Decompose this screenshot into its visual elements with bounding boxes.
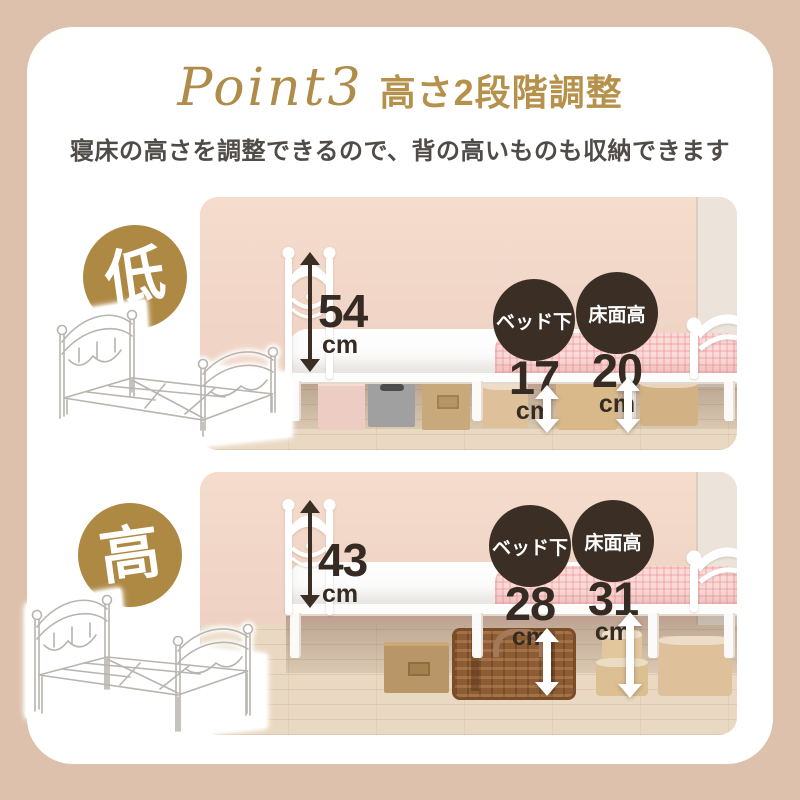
bed-leg bbox=[472, 613, 483, 658]
metric-unit: cm bbox=[569, 620, 657, 645]
metric-value: 28 bbox=[486, 580, 574, 627]
bed-leg bbox=[724, 381, 735, 421]
clearance-arrow bbox=[535, 385, 559, 433]
metric-floor-height-high: 床面高 31 cm bbox=[569, 500, 657, 645]
height-label-low: 54 cm bbox=[318, 290, 367, 357]
metric-under-bed-low: ベッド下 17 cm bbox=[490, 279, 578, 424]
height-arrow-high bbox=[300, 500, 320, 608]
metric-label: 床面高 bbox=[588, 300, 645, 327]
metric-under-bed-high: ベッド下 28 cm bbox=[486, 505, 574, 650]
bed-illustration-high bbox=[20, 585, 270, 737]
title-text: 高さ2段階調整 bbox=[380, 72, 623, 113]
footboard bbox=[680, 309, 737, 379]
bed-illustration-low bbox=[45, 296, 295, 448]
metric-label: ベッド下 bbox=[496, 307, 572, 334]
page-title: Point3高さ2段階調整 bbox=[0, 58, 800, 118]
badge-high-kanji: 高 bbox=[96, 521, 164, 589]
box-label-plate bbox=[437, 395, 459, 409]
point-number-label: Point3 bbox=[177, 58, 363, 118]
clearance-arrow bbox=[535, 628, 559, 696]
footboard bbox=[680, 542, 737, 612]
metric-unit: cm bbox=[490, 399, 578, 424]
storage-box-pink bbox=[318, 383, 365, 430]
round-box-large bbox=[658, 636, 732, 696]
clearance-arrow bbox=[616, 377, 640, 433]
metric-disc: 床面高 bbox=[572, 500, 654, 582]
clearance-arrow bbox=[618, 612, 642, 698]
subtitle-text: 寝床の高さを調整できるので、背の高いものも収納できます bbox=[0, 131, 800, 166]
metric-label: 床面高 bbox=[584, 528, 641, 555]
metric-value: 31 bbox=[569, 575, 657, 622]
metric-disc: 床面高 bbox=[576, 272, 658, 354]
box-label-plate bbox=[408, 662, 430, 676]
bed-leg bbox=[724, 613, 735, 658]
height-value: 54 bbox=[318, 290, 367, 334]
height-unit: cm bbox=[322, 583, 367, 607]
metric-disc: ベッド下 bbox=[493, 279, 575, 361]
bed-leg bbox=[472, 381, 483, 421]
metric-label: ベッド下 bbox=[492, 533, 568, 560]
storage-box-kraft bbox=[422, 378, 470, 430]
bed-leg bbox=[290, 613, 301, 658]
metric-value: 17 bbox=[490, 354, 578, 401]
metric-disc: ベッド下 bbox=[489, 505, 571, 587]
height-label-high: 43 cm bbox=[318, 539, 367, 606]
metric-unit: cm bbox=[486, 625, 574, 650]
photo-high: 43 cm ベッド下 28 cm 床面高 31 cm bbox=[200, 472, 737, 735]
height-arrow-low bbox=[300, 252, 320, 372]
height-value: 43 bbox=[318, 539, 367, 583]
product-infographic: Point3高さ2段階調整 寝床の高さを調整できるので、背の高いものも収納できま… bbox=[0, 0, 800, 800]
height-unit: cm bbox=[322, 334, 367, 358]
storage-box-cardboard bbox=[384, 642, 449, 693]
box-handle-hole bbox=[380, 384, 404, 391]
